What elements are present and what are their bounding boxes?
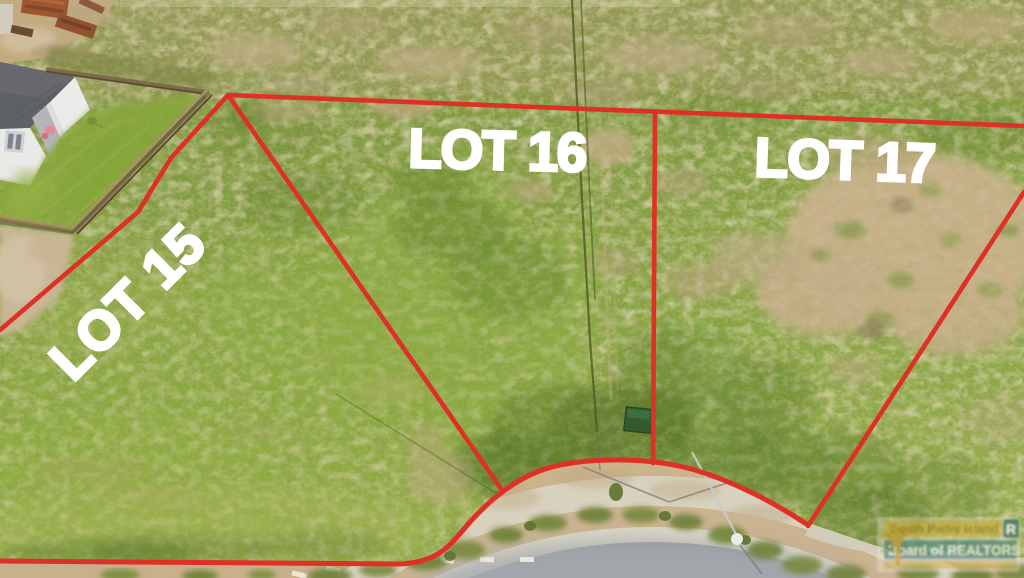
svg-text:LOT 17: LOT 17: [754, 126, 936, 194]
svg-text:LOT 16: LOT 16: [408, 117, 587, 184]
svg-text:Board of REALTORS: Board of REALTORS: [888, 543, 1020, 558]
svg-text:R: R: [1006, 521, 1016, 537]
